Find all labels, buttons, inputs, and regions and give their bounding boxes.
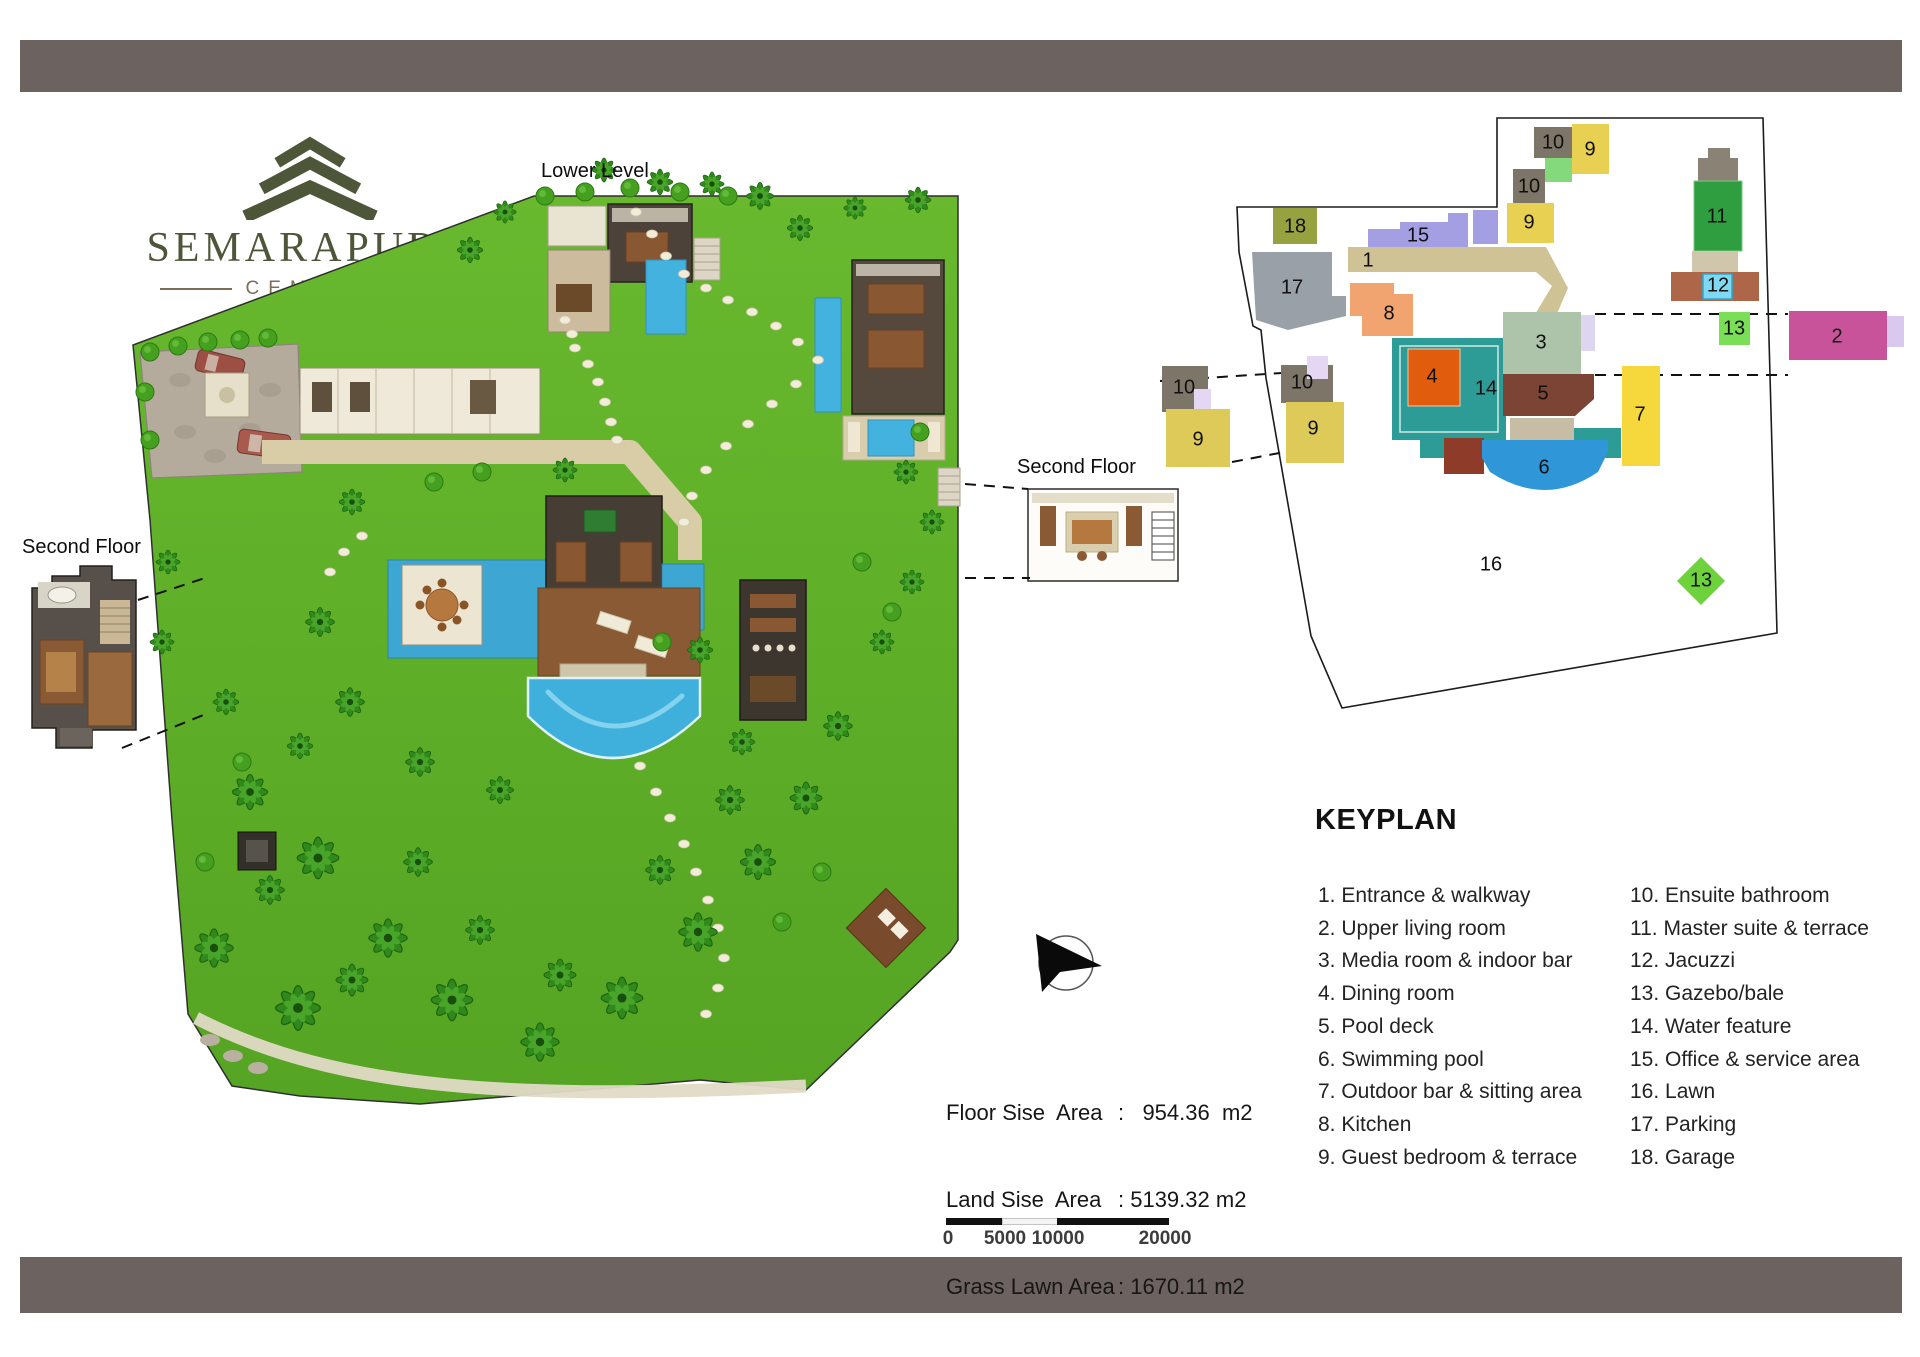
keyplan-number-10: 10 — [1518, 176, 1540, 199]
legend-item: 7. Outdoor bar & sitting area — [1318, 1076, 1582, 1109]
keyplan-number-1: 1 — [1362, 250, 1373, 273]
stat-value: : 954.36 m2 — [1118, 1100, 1253, 1125]
keyplan-diagram — [1162, 118, 1904, 708]
keyplan-number-3: 3 — [1535, 332, 1546, 355]
legend-item: 14. Water feature — [1630, 1011, 1869, 1044]
keyplan-number-5: 5 — [1537, 383, 1548, 406]
keyplan-legend-left: 1. Entrance & walkway 2. Upper living ro… — [1318, 880, 1582, 1174]
legend-item: 15. Office & service area — [1630, 1044, 1869, 1077]
keyplan-number-2: 2 — [1831, 326, 1842, 349]
keyplan-number-13: 13 — [1690, 570, 1712, 593]
keyplan-legend-right: 10. Ensuite bathroom 11. Master suite & … — [1630, 880, 1869, 1174]
legend-item: 11. Master suite & terrace — [1630, 913, 1869, 946]
keyplan-title: KEYPLAN — [1315, 804, 1457, 837]
second-floor-label-right: Second Floor — [1017, 456, 1136, 479]
legend-item: 4. Dining room — [1318, 978, 1582, 1011]
second-floor-inset-left — [32, 566, 136, 748]
keyplan-number-9: 9 — [1192, 429, 1203, 452]
legend-item: 1. Entrance & walkway — [1318, 880, 1582, 913]
scale-segment — [946, 1218, 1002, 1225]
kitchen-building — [740, 580, 806, 720]
keyplan-number-8: 8 — [1383, 303, 1394, 326]
legend-item: 12. Jacuzzi — [1630, 945, 1869, 978]
keyplan-number-13: 13 — [1723, 318, 1745, 341]
legend-item: 2. Upper living room — [1318, 913, 1582, 946]
scale-segment — [1057, 1218, 1169, 1225]
scale-tick: 20000 — [1139, 1228, 1192, 1250]
keyplan-number-12: 12 — [1707, 275, 1729, 298]
keyplan-number-4: 4 — [1426, 366, 1437, 389]
legend-item: 9. Guest bedroom & terrace — [1318, 1142, 1582, 1175]
legend-item: 17. Parking — [1630, 1109, 1869, 1142]
keyplan-number-10: 10 — [1173, 377, 1195, 400]
legend-item: 18. Garage — [1630, 1142, 1869, 1175]
keyplan-number-10: 10 — [1542, 132, 1564, 155]
stat-value: : 5139.32 m2 — [1118, 1187, 1246, 1212]
area-statistics: Floor Sise Area: 954.36 m2 Land Sise Are… — [946, 1040, 1253, 1330]
legend-item: 8. Kitchen — [1318, 1109, 1582, 1142]
scale-tick: 5000 — [984, 1228, 1026, 1250]
keyplan-number-9: 9 — [1307, 418, 1318, 441]
small-pavilion — [238, 832, 276, 870]
stat-row: Floor Sise Area: 954.36 m2 — [946, 1098, 1253, 1127]
north-arrow-icon — [1036, 934, 1102, 992]
keyplan-number-18: 18 — [1284, 216, 1306, 239]
stat-label: Grass Lawn Area — [946, 1272, 1118, 1301]
keyplan-number-6: 6 — [1538, 457, 1549, 480]
second-floor-label-left: Second Floor — [22, 536, 141, 559]
legend-item: 10. Ensuite bathroom — [1630, 880, 1869, 913]
keyplan-number-9: 9 — [1523, 212, 1534, 235]
legend-item: 5. Pool deck — [1318, 1011, 1582, 1044]
stat-row: Grass Lawn Area: 1670.11 m2 — [946, 1272, 1253, 1301]
stat-label: Floor Sise Area — [946, 1098, 1118, 1127]
legend-item: 3. Media room & indoor bar — [1318, 945, 1582, 978]
page: { "logo": { "name": "SEMARAPURA", "subti… — [0, 0, 1920, 1357]
keyplan-number-7: 7 — [1634, 404, 1645, 427]
scale-segment — [1002, 1218, 1059, 1225]
stat-label: Land Sise Area — [946, 1185, 1118, 1214]
stat-value: : 1670.11 m2 — [1118, 1274, 1245, 1299]
legend-item: 16. Lawn — [1630, 1076, 1869, 1109]
keyplan-number-17: 17 — [1281, 277, 1303, 300]
scale-bar: 0 5000 10000 20000 — [946, 1214, 1186, 1258]
keyplan-number-11: 11 — [1707, 206, 1728, 229]
scale-tick: 10000 — [1032, 1228, 1085, 1250]
second-floor-inset-right — [1028, 489, 1178, 581]
keyplan-number-14: 14 — [1475, 378, 1497, 401]
keyplan-number-10: 10 — [1291, 372, 1313, 395]
lower-level-label: Lower Level — [541, 160, 649, 183]
legend-item: 6. Swimming pool — [1318, 1044, 1582, 1077]
site-plan-lower-level — [133, 158, 960, 1104]
keyplan-number-9: 9 — [1584, 139, 1595, 162]
keyplan-number-15: 15 — [1407, 225, 1429, 248]
keyplan-number-16: 16 — [1480, 554, 1502, 577]
stat-row: Land Sise Area: 5139.32 m2 — [946, 1185, 1253, 1214]
scale-tick: 0 — [943, 1228, 954, 1250]
legend-item: 13. Gazebo/bale — [1630, 978, 1869, 1011]
